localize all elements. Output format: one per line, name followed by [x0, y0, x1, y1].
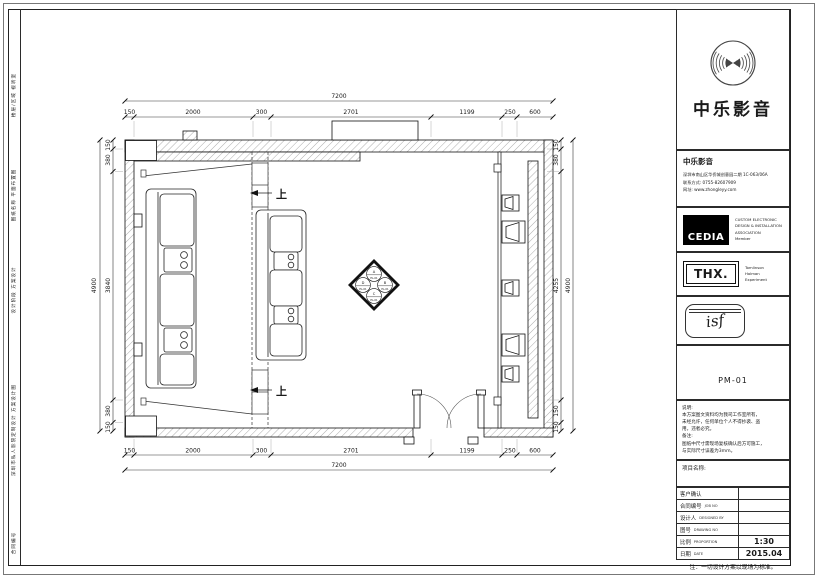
dim-top-total: 7200 — [331, 93, 346, 100]
dim-left: 150 — [105, 139, 112, 151]
dim-left: 3840 — [105, 278, 112, 293]
table-row: 设计人DESIGNED BY — [677, 512, 789, 524]
notes-line: 本方案图文资料均为我司工作室所有， — [682, 412, 784, 419]
row-label-en: DATE — [694, 552, 703, 556]
dim-top: 250 — [504, 109, 516, 116]
remark-line: 图纸中尺寸需现场复核确认后方可施工， — [682, 441, 784, 448]
row-value-scale: 1:30 — [739, 537, 789, 546]
company-phone: 联系方式: 0755-82607909 — [683, 179, 783, 187]
company-website: 网址: www.zhongleyy.com — [683, 186, 783, 194]
drawing-sheet: 楼层/区域 视听室 图纸名称 平面布置图 设计阶段 方案设计 深圳市私人影院定制… — [0, 0, 818, 578]
cedia-logo: CEDIA — [683, 215, 729, 245]
remark-title: 备注: — [682, 433, 784, 440]
row-label-en: DRAWING NO — [694, 528, 718, 532]
company-name: 中乐影音 — [683, 156, 783, 167]
table-row: 客户确认 — [677, 488, 789, 500]
dim-left: 380 — [105, 154, 112, 166]
dim-left: 150 — [105, 421, 112, 433]
dim-bottom: 300 — [256, 448, 268, 455]
dim-bottom-total: 7200 — [331, 462, 346, 469]
isf-logo-text: isf — [705, 310, 725, 330]
dim-right: 380 — [553, 154, 560, 166]
title-block-table: 客户确认 合同编号JOB NO 设计人DESIGNED BY 图号DRAWING… — [676, 487, 790, 560]
step-up-label: 上 — [276, 384, 287, 398]
project-name-label: 项目名称: — [682, 466, 706, 472]
row-label: 设计人 — [680, 514, 696, 522]
row-label: 日期 — [680, 550, 691, 558]
brand-name: 中乐影音 — [693, 95, 773, 120]
isf-cert-box: isf — [676, 296, 790, 345]
notes-line: 未经允许，任何单位个人不得抄袭、盗 — [682, 419, 784, 426]
row-label-en: PROPORTION — [694, 540, 718, 544]
entry-door — [404, 390, 486, 444]
remark-line: 与实际尺寸误差为3mm。 — [682, 448, 784, 455]
dim-bottom: 2701 — [343, 448, 358, 455]
marker-ref: EL-01 — [370, 276, 378, 280]
cedia-cert-box: CEDIA CUSTOM ELECTRONIC DESIGN & INSTALL… — [676, 207, 790, 252]
marker-letter: D — [362, 281, 365, 285]
dim-top: 600 — [529, 109, 541, 116]
step-up-label: 上 — [276, 187, 287, 201]
row-value-date: 2015.04 — [739, 549, 789, 558]
table-row: 图号DRAWING NO — [677, 524, 789, 536]
table-row: 日期DATE 2015.04 — [677, 548, 789, 559]
table-row: 比例PROPORTION 1:30 — [677, 536, 789, 548]
elevation-marker: A EL-01 B EL-01 C EL-01 D EL-01 — [348, 259, 400, 311]
dim-right: 4255 — [553, 278, 560, 293]
dim-left-total: 4900 — [91, 278, 98, 293]
brand-logo-box: 中乐影音 — [676, 9, 790, 150]
dim-left: 380 — [105, 405, 112, 417]
row-label: 图号 — [680, 526, 691, 534]
cedia-line: DESIGN & INSTALLATION — [735, 223, 782, 229]
dim-bottom: 150 — [124, 448, 136, 455]
sofa-front-row — [256, 210, 306, 360]
thx-line: Experiment — [745, 277, 767, 283]
sofa-back-row — [146, 189, 196, 388]
thx-logo: THX. — [683, 261, 739, 287]
dim-bottom: 1199 — [459, 448, 474, 455]
table-row: 合同编号JOB NO — [677, 500, 789, 512]
dim-right: 150 — [553, 421, 560, 433]
marker-ref: EL-01 — [381, 287, 389, 291]
brand-logo-icon — [709, 39, 757, 87]
thx-cert-box: THX. Tomlinson Holman Experiment — [676, 252, 790, 296]
cedia-line: Member — [735, 236, 782, 242]
dim-bottom: 250 — [504, 448, 516, 455]
notes-line: 用，违者必究。 — [682, 426, 784, 433]
company-address: 深圳市南山区华侨城创意园二期 1C-063/06A — [683, 171, 783, 179]
project-name-box: 项目名称: — [676, 460, 790, 487]
screen-wall — [494, 152, 501, 428]
dim-right: 150 — [553, 139, 560, 151]
isf-logo: isf — [685, 304, 745, 338]
drawing-number: PM-01 — [718, 376, 748, 385]
row-label: 客户确认 — [680, 490, 702, 498]
dim-top: 2701 — [343, 109, 358, 116]
notes-box: 说明: 本方案图文资料均为我司工作室所有， 未经允许，任何单位个人不得抄袭、盗 … — [676, 400, 790, 460]
row-label: 合同编号 — [680, 502, 702, 510]
dim-top: 2000 — [185, 109, 200, 116]
row-label-en: DESIGNED BY — [699, 516, 724, 520]
row-label: 比例 — [680, 538, 691, 546]
dim-top: 150 — [124, 109, 136, 116]
footer-note: 注：一切设计方案以现场为标准。 — [676, 562, 790, 571]
surround-speakers — [134, 214, 142, 356]
dim-bottom: 600 — [529, 448, 541, 455]
dim-top: 300 — [256, 109, 268, 116]
drawing-number-box: PM-01 — [676, 345, 790, 400]
notes-title: 说明: — [682, 405, 784, 412]
row-label-en: JOB NO — [705, 504, 718, 508]
dim-top: 1199 — [459, 109, 474, 116]
company-info-box: 中乐影音 深圳市南山区华侨城创意园二期 1C-063/06A 联系方式: 075… — [676, 150, 790, 207]
dim-bottom: 2000 — [185, 448, 200, 455]
dim-right: 150 — [553, 405, 560, 417]
marker-ref: EL-01 — [359, 287, 367, 291]
marker-ref: EL-01 — [370, 298, 378, 302]
front-speakers — [502, 195, 525, 382]
dim-right-total: 4900 — [565, 278, 572, 293]
